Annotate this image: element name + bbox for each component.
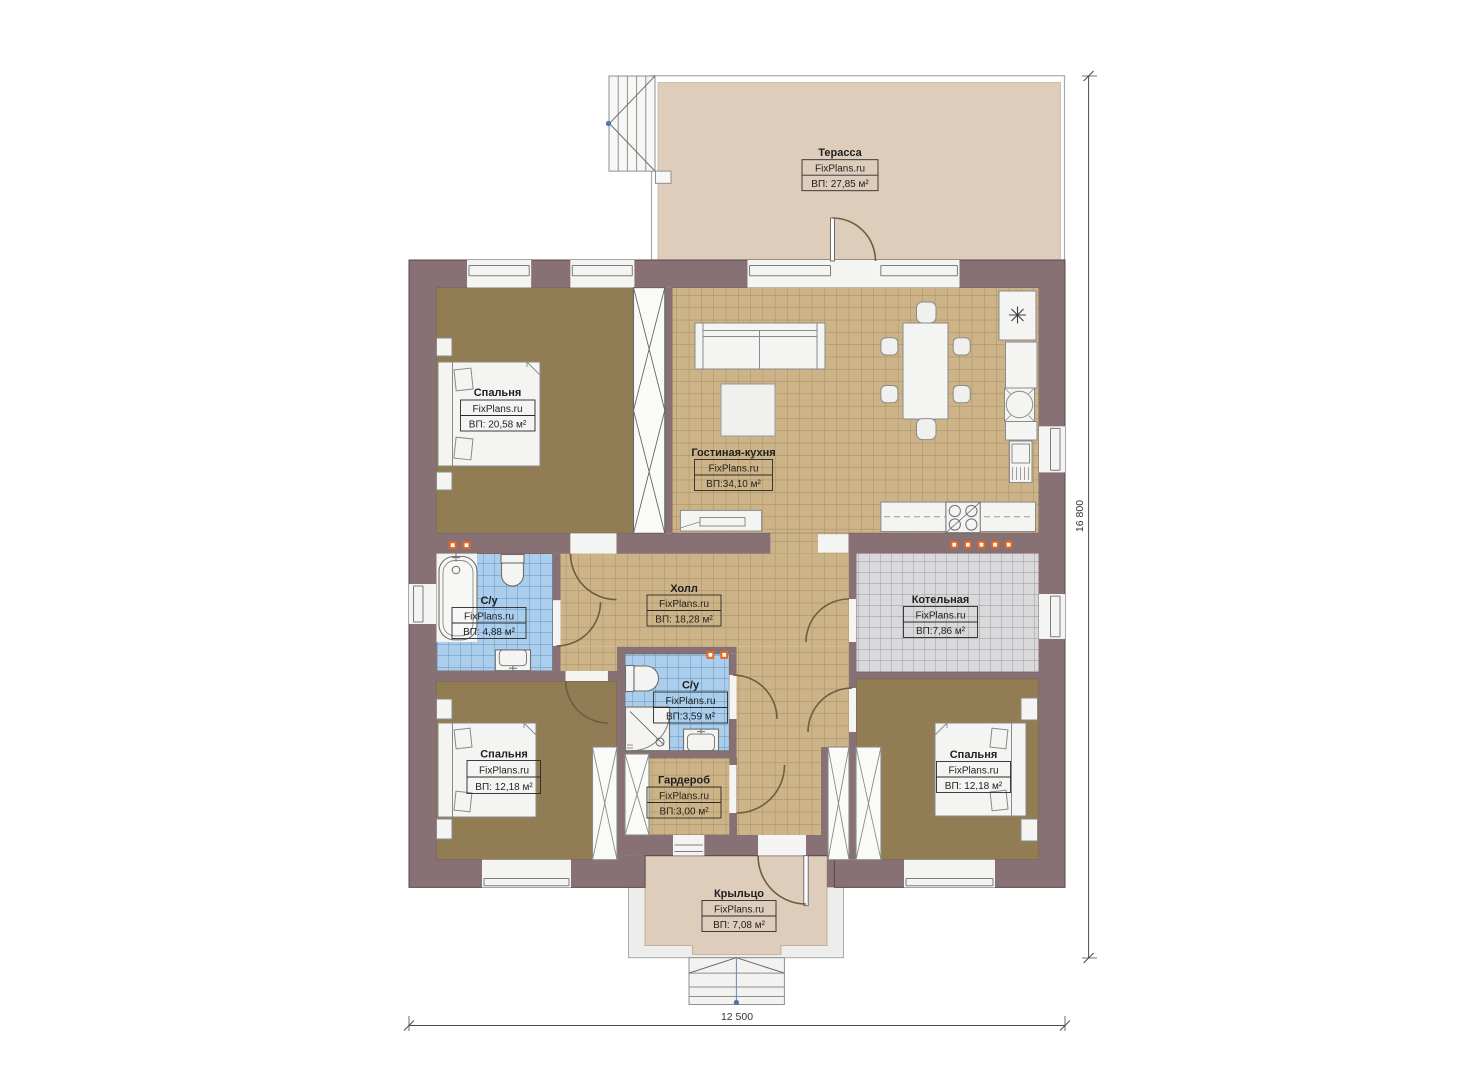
svg-text:Котельная: Котельная bbox=[912, 594, 970, 606]
svg-text:С/у: С/у bbox=[480, 595, 498, 607]
svg-text:ВП: 4,88 м²: ВП: 4,88 м² bbox=[463, 627, 516, 638]
svg-text:FixPlans.ru: FixPlans.ru bbox=[714, 904, 764, 915]
svg-text:Спальня: Спальня bbox=[480, 749, 528, 761]
svg-text:ВП: 27,85 м²: ВП: 27,85 м² bbox=[811, 179, 869, 190]
svg-text:Холл: Холл bbox=[670, 583, 698, 595]
svg-text:FixPlans.ru: FixPlans.ru bbox=[659, 791, 709, 802]
svg-text:ВП: 7,08 м²: ВП: 7,08 м² bbox=[713, 920, 766, 931]
svg-text:Спальня: Спальня bbox=[474, 387, 522, 399]
svg-text:16 800: 16 800 bbox=[1074, 500, 1086, 532]
svg-text:ВП: 18,28 м²: ВП: 18,28 м² bbox=[655, 614, 713, 625]
svg-text:FixPlans.ru: FixPlans.ru bbox=[665, 696, 715, 707]
svg-text:Спальня: Спальня bbox=[950, 749, 998, 761]
svg-text:ВП: 12,18 м²: ВП: 12,18 м² bbox=[475, 782, 533, 793]
svg-text:ВП:3,00 м²: ВП:3,00 м² bbox=[659, 806, 709, 817]
svg-text:12 500: 12 500 bbox=[721, 1011, 753, 1023]
svg-text:FixPlans.ru: FixPlans.ru bbox=[479, 765, 529, 776]
svg-text:С/у: С/у bbox=[682, 680, 700, 692]
svg-text:ВП:3,59 м²: ВП:3,59 м² bbox=[666, 711, 716, 722]
svg-text:FixPlans.ru: FixPlans.ru bbox=[472, 404, 522, 415]
svg-text:FixPlans.ru: FixPlans.ru bbox=[915, 610, 965, 621]
svg-text:ВП: 12,18 м²: ВП: 12,18 м² bbox=[945, 781, 1003, 792]
svg-text:FixPlans.ru: FixPlans.ru bbox=[659, 599, 709, 610]
svg-text:ВП: 20,58 м²: ВП: 20,58 м² bbox=[469, 419, 527, 430]
svg-text:ВП:7,86 м²: ВП:7,86 м² bbox=[916, 626, 966, 637]
svg-text:FixPlans.ru: FixPlans.ru bbox=[948, 765, 998, 776]
svg-text:ВП:34,10 м²: ВП:34,10 м² bbox=[706, 479, 761, 490]
svg-text:Гардероб: Гардероб bbox=[658, 775, 710, 787]
svg-text:FixPlans.ru: FixPlans.ru bbox=[464, 611, 514, 622]
svg-text:Терасса: Терасса bbox=[818, 147, 862, 159]
svg-text:Гостиная-кухня: Гостиная-кухня bbox=[691, 447, 775, 459]
svg-text:FixPlans.ru: FixPlans.ru bbox=[815, 164, 865, 175]
svg-text:Крыльцо: Крыльцо bbox=[714, 888, 764, 900]
svg-text:FixPlans.ru: FixPlans.ru bbox=[708, 463, 758, 474]
